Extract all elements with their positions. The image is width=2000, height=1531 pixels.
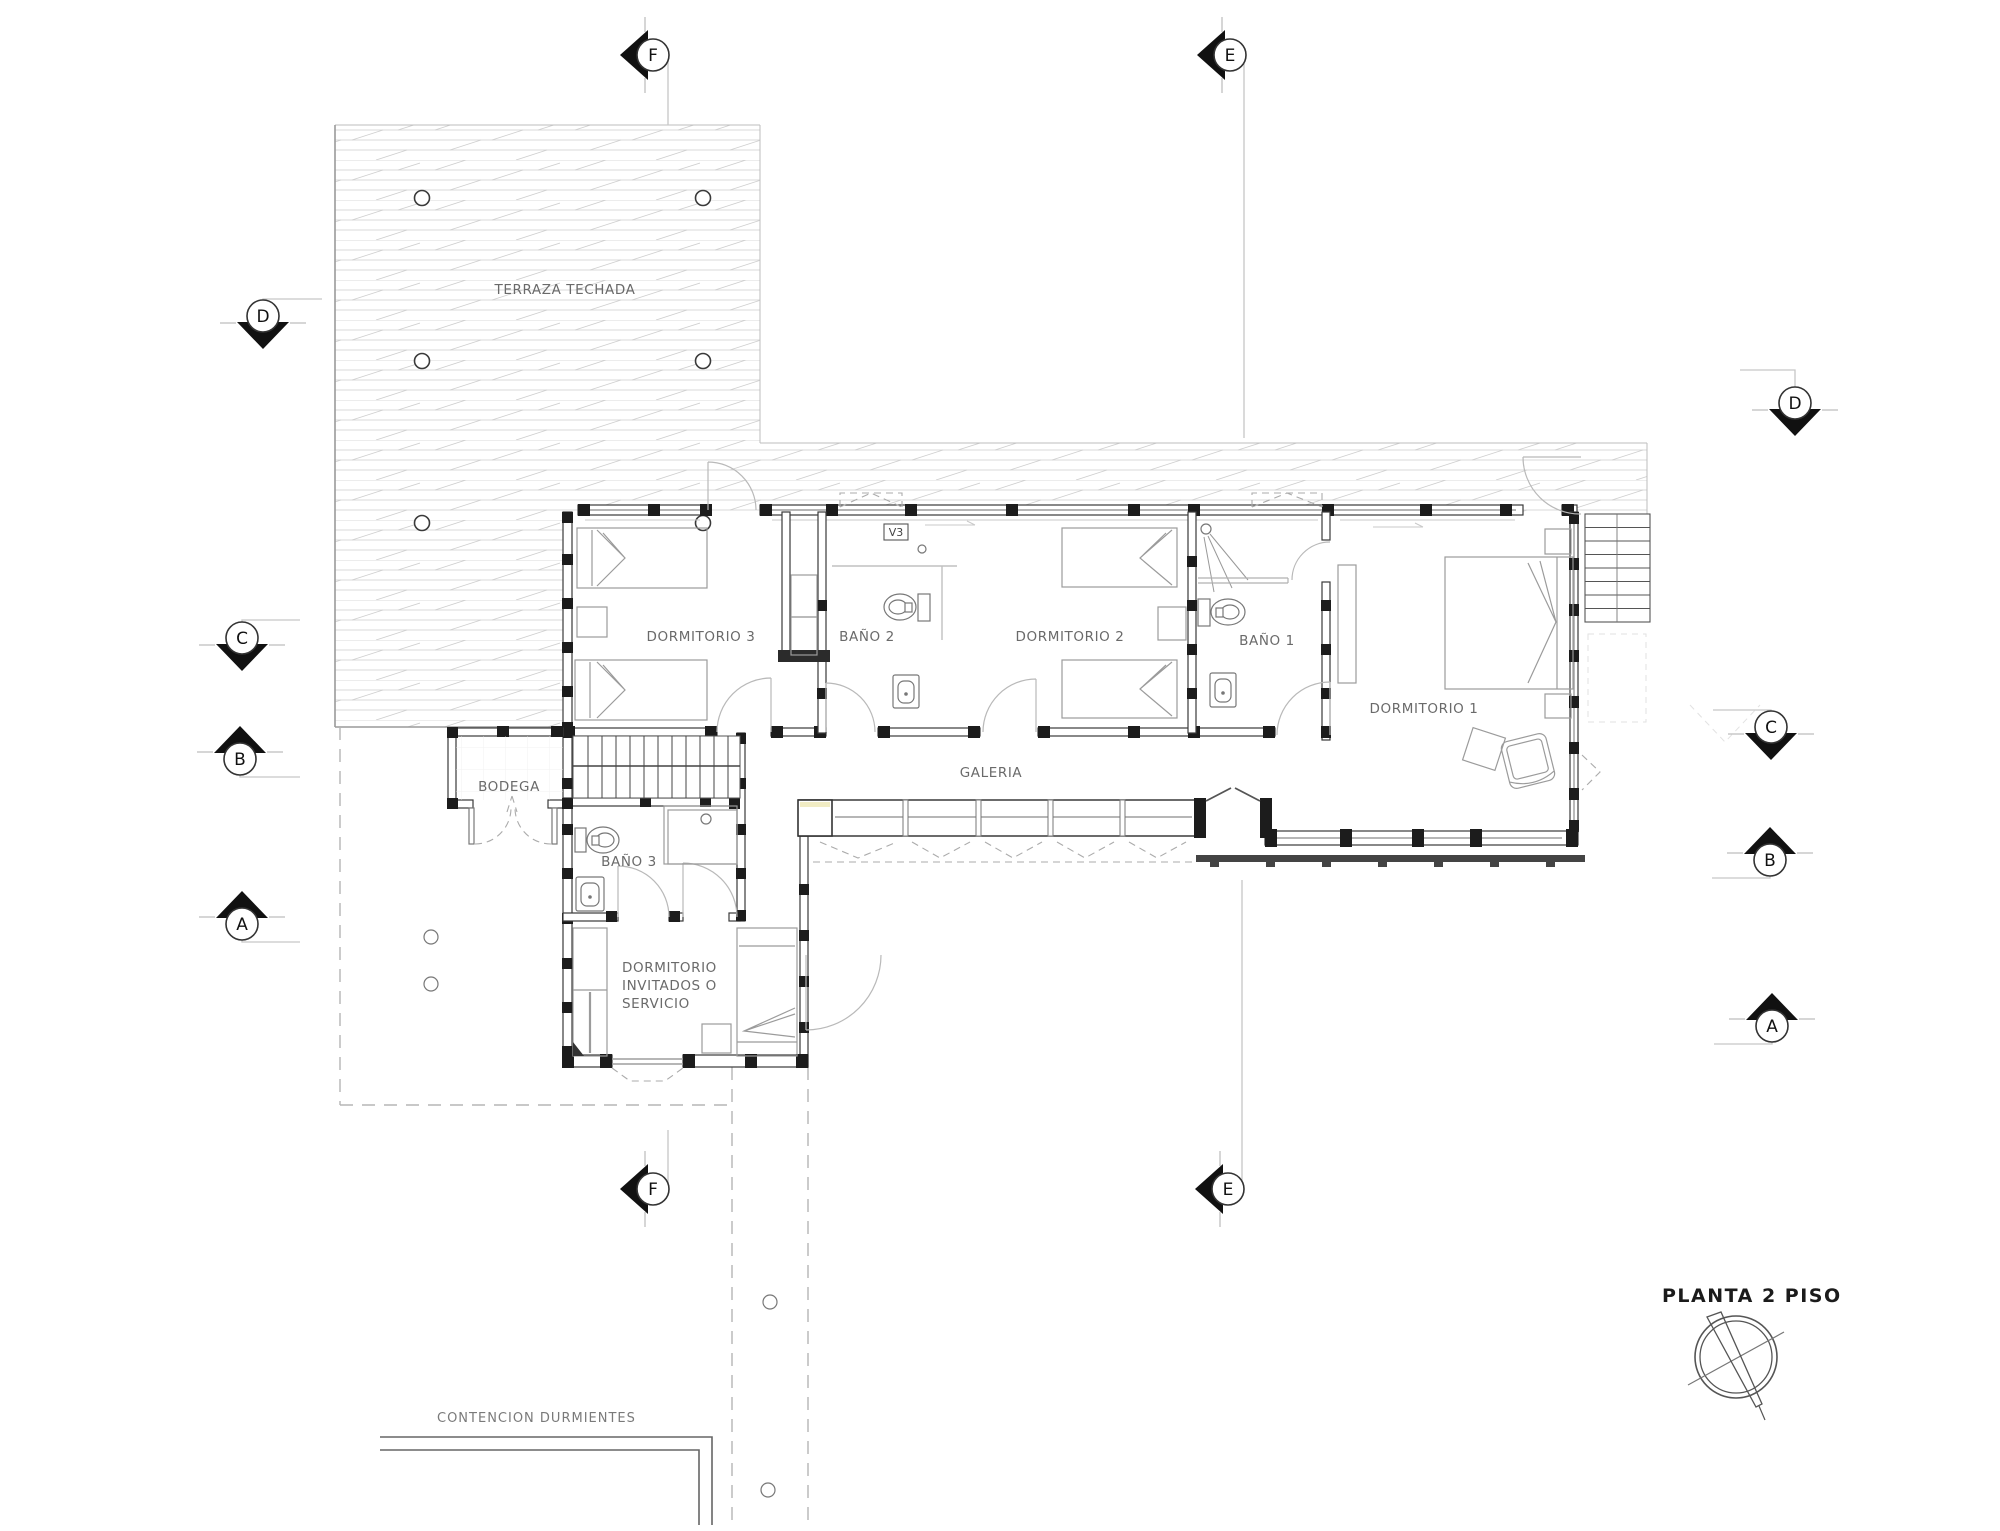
marker-letter: C bbox=[1765, 718, 1777, 738]
double-bed bbox=[1445, 557, 1573, 689]
galeria-mullions bbox=[903, 800, 1125, 836]
toilet bbox=[1198, 599, 1245, 626]
terrace-deck-hatch bbox=[335, 125, 1647, 727]
retaining-wall-lines bbox=[380, 1437, 712, 1525]
bedroom-south-wall bbox=[1038, 728, 1275, 736]
terrace-post bbox=[696, 191, 711, 206]
galeria-label: GALERIA bbox=[960, 765, 1023, 781]
room-dormitorio2: DORMITORIO 2 bbox=[1016, 528, 1186, 718]
dorm1-west-wall bbox=[1322, 512, 1330, 540]
marker-letter: E bbox=[1223, 1180, 1234, 1200]
bed-fold bbox=[1528, 561, 1556, 683]
dormitorio3-label: DORMITORIO 3 bbox=[647, 629, 756, 645]
window-slide-arrows bbox=[925, 521, 1423, 527]
dormitorio1-label: DORMITORIO 1 bbox=[1370, 701, 1479, 717]
section-marker-e-bottom: E bbox=[1195, 1151, 1244, 1227]
marker-letter: D bbox=[1788, 394, 1801, 414]
marker-letter: B bbox=[234, 750, 246, 770]
sink bbox=[576, 877, 604, 911]
bed bbox=[1062, 660, 1177, 718]
sink bbox=[1210, 673, 1236, 707]
invitados-door-swing bbox=[683, 863, 737, 917]
exterior-landing-faint bbox=[1588, 634, 1646, 722]
invitados-label-3: SERVICIO bbox=[622, 996, 690, 1012]
folding-door-projection bbox=[813, 842, 1192, 862]
galeria-corner-highlight bbox=[800, 802, 830, 807]
wardrobe bbox=[1338, 565, 1356, 683]
plan-canvas: TERRAZA TECHADA CONTENCION DURMIENTES bbox=[0, 0, 2000, 1531]
bedroom-south-wall bbox=[563, 728, 717, 736]
floor-plan-sheet: TERRAZA TECHADA CONTENCION DURMIENTES bbox=[0, 0, 2000, 1531]
stair-south-wall bbox=[563, 798, 740, 806]
section-marker-e-top: E bbox=[1197, 17, 1246, 93]
galeria-exterior-door-swing bbox=[806, 955, 881, 1030]
marker-letter: A bbox=[236, 915, 248, 935]
bed bbox=[577, 528, 707, 588]
dormitorio2-label: DORMITORIO 2 bbox=[1016, 629, 1125, 645]
interior-stair bbox=[573, 736, 740, 798]
terrace-label: TERRAZA TECHADA bbox=[494, 282, 636, 298]
marker-letter: C bbox=[236, 629, 248, 649]
invitados-label-2: INVITADOS O bbox=[622, 978, 717, 994]
corner-wedge bbox=[573, 1042, 584, 1056]
deck-edge-ticks bbox=[1210, 862, 1555, 867]
closet-base bbox=[778, 650, 830, 662]
invitados-window-projection bbox=[612, 1068, 683, 1081]
bodega-west-wall bbox=[448, 728, 456, 808]
terrace-post bbox=[415, 516, 430, 531]
path-post bbox=[761, 1483, 775, 1497]
marker-letter: D bbox=[256, 307, 269, 327]
window-tag: V3 bbox=[889, 526, 904, 539]
bano1-upper-door-swing bbox=[1292, 542, 1330, 580]
exterior-stair bbox=[1582, 514, 1760, 790]
bodega-door-leaf bbox=[552, 808, 557, 844]
bed-fold bbox=[744, 1008, 795, 1037]
terrace-area: TERRAZA TECHADA bbox=[335, 125, 1647, 727]
bed bbox=[575, 660, 707, 720]
toilet bbox=[575, 827, 619, 853]
section-marker-a-right: A bbox=[1729, 993, 1815, 1042]
invitados-label-1: DORMITORIO bbox=[622, 960, 717, 976]
stair-outline bbox=[573, 736, 740, 798]
marker-letter: A bbox=[1766, 1017, 1778, 1037]
terrace-post bbox=[696, 354, 711, 369]
section-marker-c-right: C bbox=[1728, 711, 1814, 760]
nightstand bbox=[577, 607, 607, 637]
nightstand bbox=[702, 1024, 731, 1053]
closet-wall bbox=[782, 512, 790, 655]
vent bbox=[918, 545, 926, 553]
sink bbox=[893, 675, 919, 708]
section-marker-b-right: B bbox=[1727, 827, 1813, 876]
path-post bbox=[763, 1295, 777, 1309]
site-post bbox=[424, 977, 438, 991]
section-marker-b-left: B bbox=[197, 726, 283, 775]
double-door-chevron bbox=[1206, 788, 1260, 801]
bano1-label: BAÑO 1 bbox=[1239, 632, 1295, 649]
east-door-projection bbox=[1582, 755, 1600, 790]
room-bano3: BAÑO 3 bbox=[575, 806, 737, 911]
bodega-door-swings bbox=[475, 796, 551, 844]
connector-bottom-f bbox=[662, 1130, 668, 1183]
bano2-label: BAÑO 2 bbox=[839, 628, 895, 645]
bano2-door-swing bbox=[826, 683, 875, 732]
marker-letter: E bbox=[1225, 46, 1236, 66]
bed bbox=[737, 928, 797, 1056]
galeria-band: GALERIA bbox=[798, 765, 1272, 1030]
section-marker-f-top: F bbox=[620, 17, 669, 93]
bodega-label: BODEGA bbox=[478, 779, 540, 795]
terrace-post bbox=[415, 354, 430, 369]
section-marker-c-left: C bbox=[199, 622, 285, 671]
side-table bbox=[1463, 728, 1506, 771]
deck-edge bbox=[1196, 855, 1585, 862]
section-marker-a-left: A bbox=[199, 891, 285, 940]
room-dormitorio1: DORMITORIO 1 bbox=[925, 521, 1573, 790]
nightstand bbox=[1545, 694, 1571, 718]
title-block: PLANTA 2 PISO bbox=[1662, 1285, 1842, 1420]
bed-fold bbox=[597, 662, 625, 718]
north-compass-icon bbox=[1688, 1312, 1784, 1420]
connector-bottom-e bbox=[1237, 880, 1242, 1185]
bodega-door-leaf bbox=[469, 808, 474, 844]
room-dormitorio3: DORMITORIO 3 bbox=[575, 528, 817, 720]
shower bbox=[664, 806, 737, 864]
site-post bbox=[424, 930, 438, 944]
bano3-label: BAÑO 3 bbox=[601, 853, 657, 870]
toilet bbox=[884, 594, 930, 621]
bedroom-south-wall bbox=[878, 728, 980, 736]
room-bodega: BODEGA bbox=[456, 736, 563, 800]
bano2-west-wall bbox=[818, 512, 826, 733]
galeria-door-post bbox=[1260, 798, 1272, 838]
shower-head bbox=[1201, 524, 1211, 534]
bodega-south-wall bbox=[548, 800, 563, 808]
sheet-title: PLANTA 2 PISO bbox=[1662, 1285, 1842, 1307]
nightstand bbox=[1545, 529, 1571, 554]
section-marker-d-left: D bbox=[220, 300, 306, 349]
marker-letter: F bbox=[648, 1180, 658, 1200]
section-marker-f-bottom: F bbox=[620, 1151, 669, 1227]
nightstand bbox=[1158, 607, 1186, 640]
marker-letter: B bbox=[1764, 851, 1776, 871]
bed-fold bbox=[597, 530, 625, 586]
bed-fold bbox=[1140, 530, 1172, 585]
retaining-wall-note: CONTENCION DURMIENTES bbox=[437, 1411, 636, 1426]
section-marker-d-right: D bbox=[1752, 387, 1838, 436]
room-bano2: V3 BAÑO 2 bbox=[832, 524, 957, 708]
terrace-post bbox=[415, 191, 430, 206]
marker-letter: F bbox=[648, 46, 658, 66]
armchair bbox=[1500, 732, 1556, 790]
doors bbox=[469, 457, 1581, 917]
bano1-west-wall bbox=[1188, 512, 1196, 733]
dorm3-door-swing bbox=[717, 678, 771, 732]
bed-fold bbox=[1140, 662, 1172, 716]
galeria-band-lines bbox=[798, 800, 1200, 836]
bano3-door-swing bbox=[618, 866, 669, 917]
galeria-door-post bbox=[1194, 798, 1206, 838]
closet-shelves bbox=[791, 575, 817, 655]
room-invitados: DORMITORIO INVITADOS O SERVICIO bbox=[573, 928, 797, 1056]
bed bbox=[1062, 528, 1177, 587]
connector-top-e bbox=[1239, 53, 1244, 438]
room-bano1: BAÑO 1 bbox=[1198, 524, 1295, 707]
invitados-window bbox=[612, 1059, 683, 1064]
dorm2-door-swing bbox=[983, 679, 1036, 732]
